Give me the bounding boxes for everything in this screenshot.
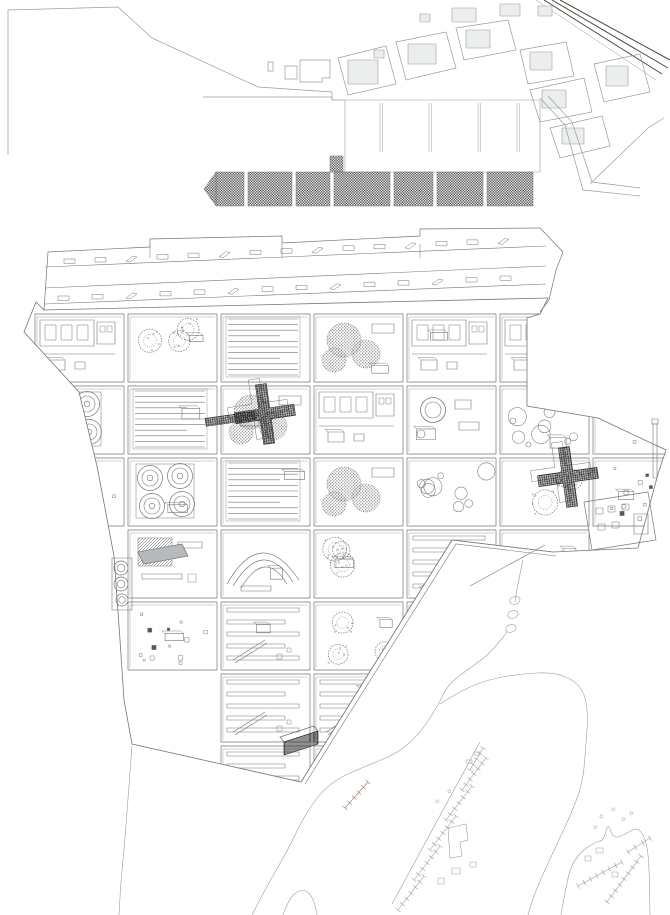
river-shorelines: [119, 560, 650, 915]
marina-piers: [343, 742, 652, 912]
harbour-quay: [203, 97, 540, 172]
checkered-pier-band: [204, 156, 533, 206]
masterplan-drawing: [0, 0, 670, 915]
megastructure-grid: [24, 298, 670, 814]
northwest-coastline: [8, 7, 345, 155]
masterplan-sheet: [0, 0, 670, 915]
existing-city-fabric: [338, 0, 670, 196]
cross-buildings: [205, 375, 602, 511]
